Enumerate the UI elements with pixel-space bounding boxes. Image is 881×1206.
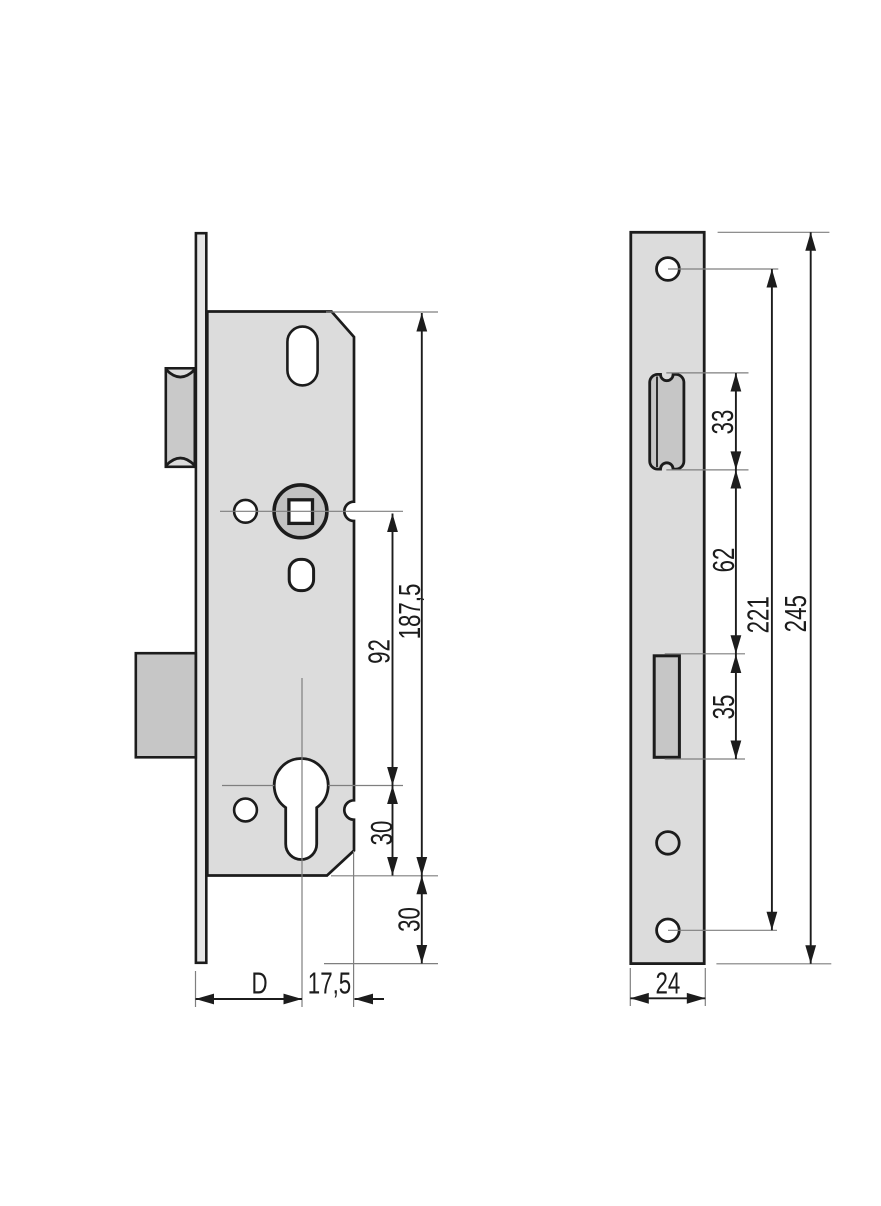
- svg-text:33: 33: [705, 410, 739, 435]
- svg-text:245: 245: [778, 595, 812, 632]
- svg-text:17,5: 17,5: [308, 966, 351, 1000]
- svg-text:30: 30: [364, 821, 398, 846]
- svg-text:92: 92: [362, 639, 396, 664]
- svg-text:187,5: 187,5: [392, 584, 426, 640]
- svg-text:D: D: [251, 966, 267, 1000]
- svg-text:35: 35: [706, 695, 740, 720]
- svg-text:62: 62: [706, 548, 740, 573]
- svg-text:30: 30: [392, 907, 426, 932]
- svg-text:24: 24: [655, 966, 680, 1000]
- svg-text:221: 221: [741, 596, 775, 633]
